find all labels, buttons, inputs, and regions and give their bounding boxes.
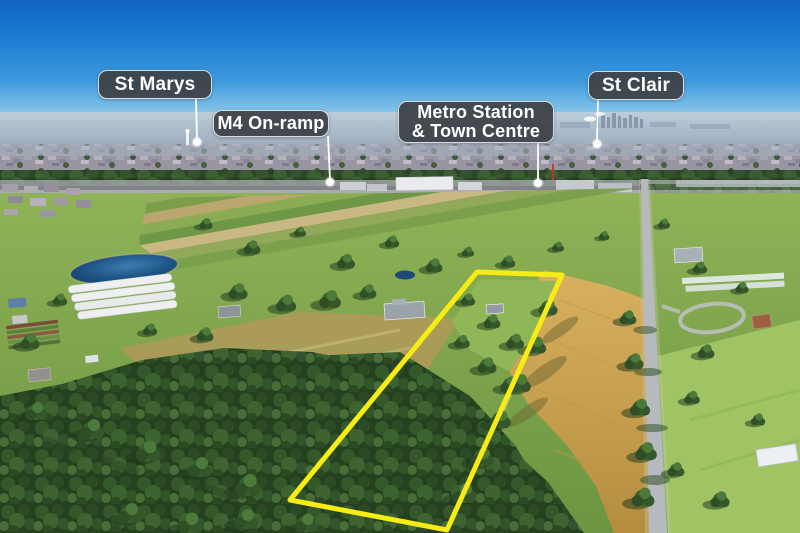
leader-line-st-clair [597,99,598,142]
leader-dot-m4-on-ramp [326,178,334,186]
leader-dot-metro-station [534,179,542,187]
warehouse [396,176,453,190]
callout-metro-station-town-centre: Metro Station & Town Centre [398,101,554,143]
callout-st-clair-label: St Clair [602,76,670,96]
aerial-photo: St Marys M4 On-ramp Metro Station & Town… [0,0,800,533]
leader-dot-st-clair [593,140,601,148]
callout-st-marys-label: St Marys [115,75,196,95]
callout-st-clair: St Clair [588,71,684,100]
leader-line-st-marys [196,98,197,140]
callout-metro-line2: & Town Centre [412,122,540,141]
small-dam [395,271,415,280]
callout-m4-on-ramp: M4 On-ramp [213,110,329,137]
leader-dot-st-marys [193,138,201,146]
callout-metro-line1: Metro Station [417,103,535,122]
callout-st-marys: St Marys [98,70,212,99]
callout-m4-on-ramp-label: M4 On-ramp [217,114,324,133]
